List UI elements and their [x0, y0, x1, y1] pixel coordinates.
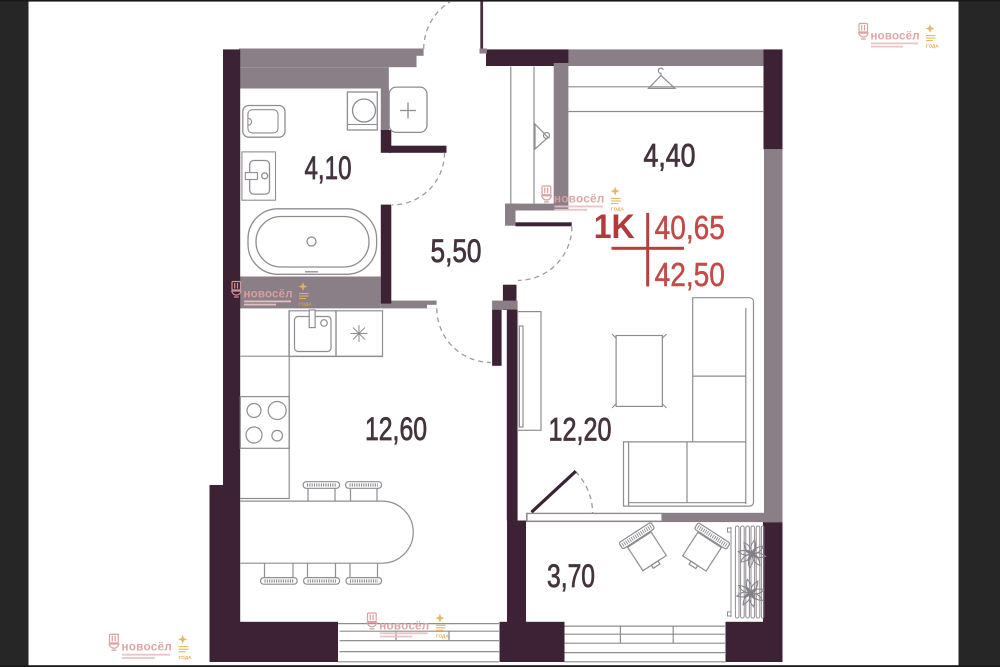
svg-text:3,70: 3,70 — [547, 558, 595, 594]
svg-text:42,50: 42,50 — [655, 257, 725, 294]
svg-text:4,40: 4,40 — [644, 138, 696, 174]
svg-text:40,65: 40,65 — [655, 210, 725, 247]
svg-text:12,60: 12,60 — [365, 411, 427, 447]
svg-text:4,10: 4,10 — [305, 150, 352, 186]
svg-text:5,50: 5,50 — [431, 233, 482, 269]
svg-text:12,20: 12,20 — [549, 412, 612, 448]
svg-text:1K: 1K — [594, 208, 635, 246]
